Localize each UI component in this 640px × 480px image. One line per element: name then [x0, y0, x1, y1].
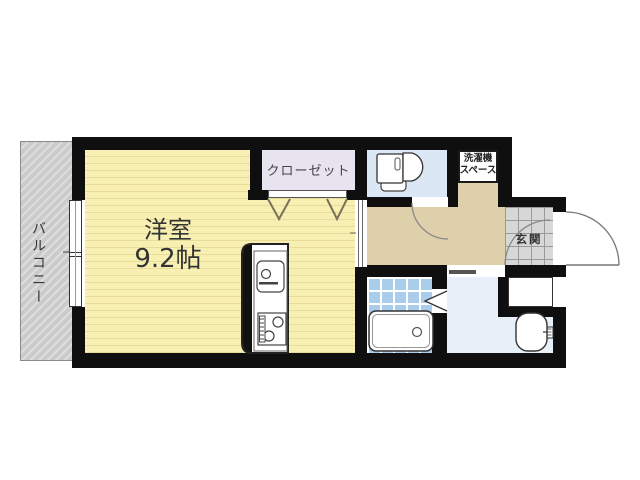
wall-hall-washroom: [355, 265, 447, 277]
balcony-label: バルコニー: [28, 221, 48, 306]
front-door-opening: [553, 212, 566, 265]
closet-door-track: [268, 190, 347, 198]
shoe-cabinet: [508, 277, 553, 307]
balcony-window: [69, 200, 82, 307]
wall-shoebox-bottom: [498, 307, 556, 317]
wall-entrance-right-upper: [553, 197, 566, 212]
window-sash-line: [75, 201, 76, 306]
wall-left-upper: [72, 137, 85, 200]
hallway-area: [367, 197, 505, 265]
washer-space-label: 洗濯機 スペース: [458, 153, 498, 178]
toilet-door-opening: [412, 197, 448, 207]
wall-bath-washroom: [432, 277, 447, 353]
toilet-room-area: [367, 150, 447, 197]
wall-toilet-right: [447, 137, 458, 207]
wall-bottom: [72, 353, 566, 368]
western-room-label: 洋室 9.2帖: [118, 217, 218, 274]
closet-label: クローゼット: [262, 160, 355, 179]
wall-right-lower: [553, 307, 566, 368]
floorplan-canvas: バルコニー 洋室 9.2帖 クローゼット 洗濯機 スペース 玄関: [0, 0, 640, 480]
room-sliding-door: [355, 200, 367, 267]
bathroom-tile-area: [367, 277, 432, 353]
hallway-area-under-washer: [458, 183, 498, 197]
entrance-label: 玄関: [505, 231, 553, 247]
front-door-arc: [566, 212, 619, 265]
wall-closet-bottom-left: [248, 190, 268, 200]
wall-room-divider-lower: [355, 265, 367, 368]
wall-top: [72, 137, 512, 150]
washroom-door-opening: [447, 265, 505, 277]
washroom-door-leaf: [449, 270, 476, 274]
wall-entrance-bottom: [498, 265, 566, 277]
room-size: 9.2帖: [118, 245, 218, 275]
room-name: 洋室: [118, 217, 218, 245]
